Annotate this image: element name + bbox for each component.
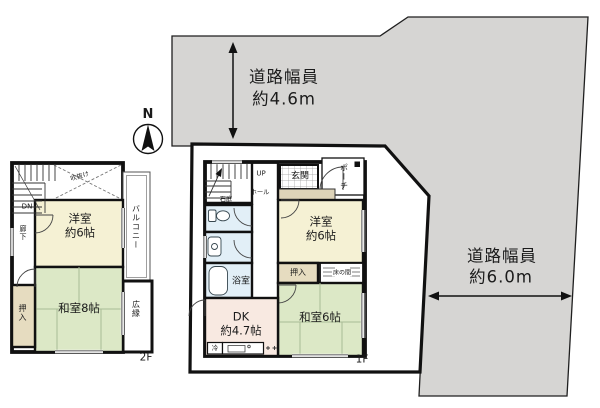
floor2-western-room-label: 洋室 約6帖 <box>65 212 95 241</box>
floor1-western-room-label: 洋室 約6帖 <box>306 215 336 244</box>
floor2-stairs-dn-label: DN <box>22 203 33 212</box>
floor2-corridor-label: 廊下 <box>18 225 28 241</box>
floor1-bathroom-label: 浴室 <box>232 276 250 287</box>
floor1-fridge-label: 冷 <box>212 345 218 353</box>
floor1-closet-label: 押入 <box>290 268 306 278</box>
floor1-dk-label: DK 約4.7帖 <box>220 310 261 339</box>
road-right-width: 約6.0m <box>469 268 533 289</box>
floorplan-canvas: N 道路幅員 約4.6m 道路幅員 約6.0m DN 廊下 吹抜け 洋室 約6帖… <box>0 0 600 408</box>
floor1-porch-label: ポーチ <box>339 164 350 191</box>
road-right-title: 道路幅員 <box>467 247 537 268</box>
floor1-entrance-label: 玄関 <box>291 171 309 182</box>
floor1-alcove-label: 床の間 <box>332 269 352 277</box>
floor1-japanese-room-label: 和室6帖 <box>299 310 341 324</box>
compass-north-label: N <box>143 107 154 123</box>
compass-icon <box>134 125 163 154</box>
floor2-closet-label: 押入 <box>17 304 28 322</box>
floor1-hall-label: ホール <box>251 189 270 197</box>
floor1-label: 1F <box>356 353 369 366</box>
road-top-title: 道路幅員 <box>249 68 319 89</box>
floor2-plan <box>10 163 152 354</box>
floor2-veranda-label: 広縁 <box>131 300 142 318</box>
floor2-label: 2F <box>140 351 153 364</box>
floorplan-drawing <box>0 0 600 408</box>
floor2-balcony-label: バルコニー <box>131 205 142 250</box>
road-top-width: 約4.6m <box>252 90 316 111</box>
floor2-japanese-room-label: 和室8帖 <box>58 301 100 315</box>
floor1-rock-garden-label: 石庭 <box>220 196 233 204</box>
floor1-stairs-up-label: UP <box>256 170 265 179</box>
